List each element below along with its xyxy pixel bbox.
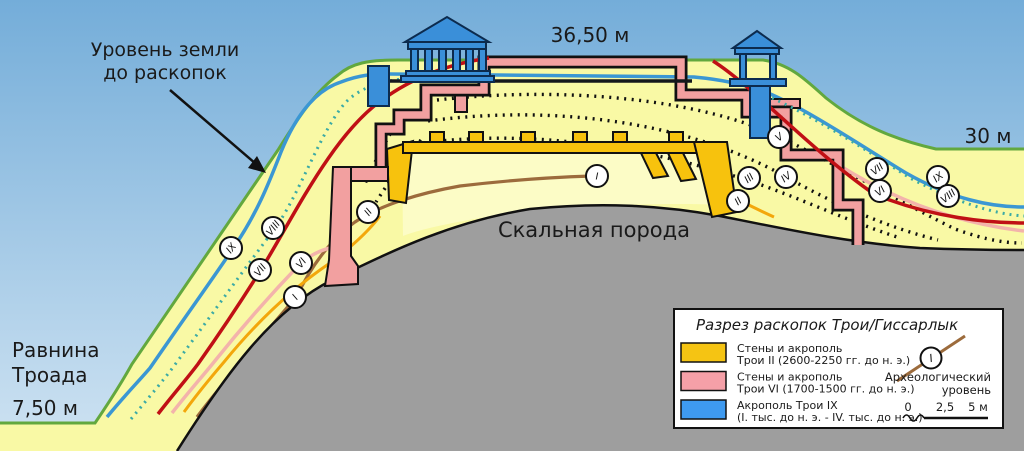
troy6-step-block (351, 167, 388, 181)
legend-swatch (681, 372, 726, 391)
legend-swatch (681, 400, 726, 419)
troy2-wall-band (403, 142, 722, 153)
troy-cross-section-diagram: IIXVIIIVIIVIIIIVIVIIIIIVIIVIIXVIII Урове… (0, 0, 1024, 451)
plain-label-line2: Троада (11, 363, 88, 387)
bedrock-label: Скальная порода (498, 218, 690, 242)
legend-title: Разрез раскопок Трои/Гиссарлык (696, 316, 958, 334)
legend: Разрез раскопок Трои/Гиссарлык Стены и а… (674, 309, 1003, 428)
troy2-merlon (573, 132, 587, 142)
legend-item-line2: Трои VI (1700-1500 гг. до н. э.) (736, 383, 914, 396)
summit-elevation-label: 36,50 м (551, 23, 630, 47)
legend-item-line2: (I. тыс. до н. э. - IV. тыс. до н. э.) (737, 411, 923, 424)
ground-level-label-line1: Уровень земли (91, 39, 239, 61)
troy2-merlon (613, 132, 627, 142)
legend-item-line2: Трои II (2600-2250 гг. до н. э.) (736, 354, 910, 367)
troy2-merlon (669, 132, 683, 142)
plain-label-line1: Равнина (12, 338, 100, 362)
ground-level-label-line2: до раскопок (103, 62, 227, 84)
diagram-canvas: IIXVIIIVIIVIIIIVIVIIIIIVIIVIIXVIII Урове… (0, 0, 1024, 451)
right-elevation-label: 30 м (965, 124, 1012, 148)
legend-swatch (681, 343, 726, 362)
troy9-tower (368, 66, 389, 106)
plain-elevation-label: 7,50 м (12, 396, 78, 420)
troy2-merlon (469, 132, 483, 142)
level-marker-label: I (596, 172, 599, 183)
scale-tick-label: 5 м (968, 400, 988, 414)
troy2-merlon (521, 132, 535, 142)
arch-level-label-line1: Археологический (885, 370, 991, 384)
arch-level-label-line2: уровень (942, 383, 992, 397)
scale-tick-label: 2,5 (936, 400, 954, 414)
troy2-merlon (430, 132, 444, 142)
scale-tick-label: 0 (904, 400, 911, 414)
